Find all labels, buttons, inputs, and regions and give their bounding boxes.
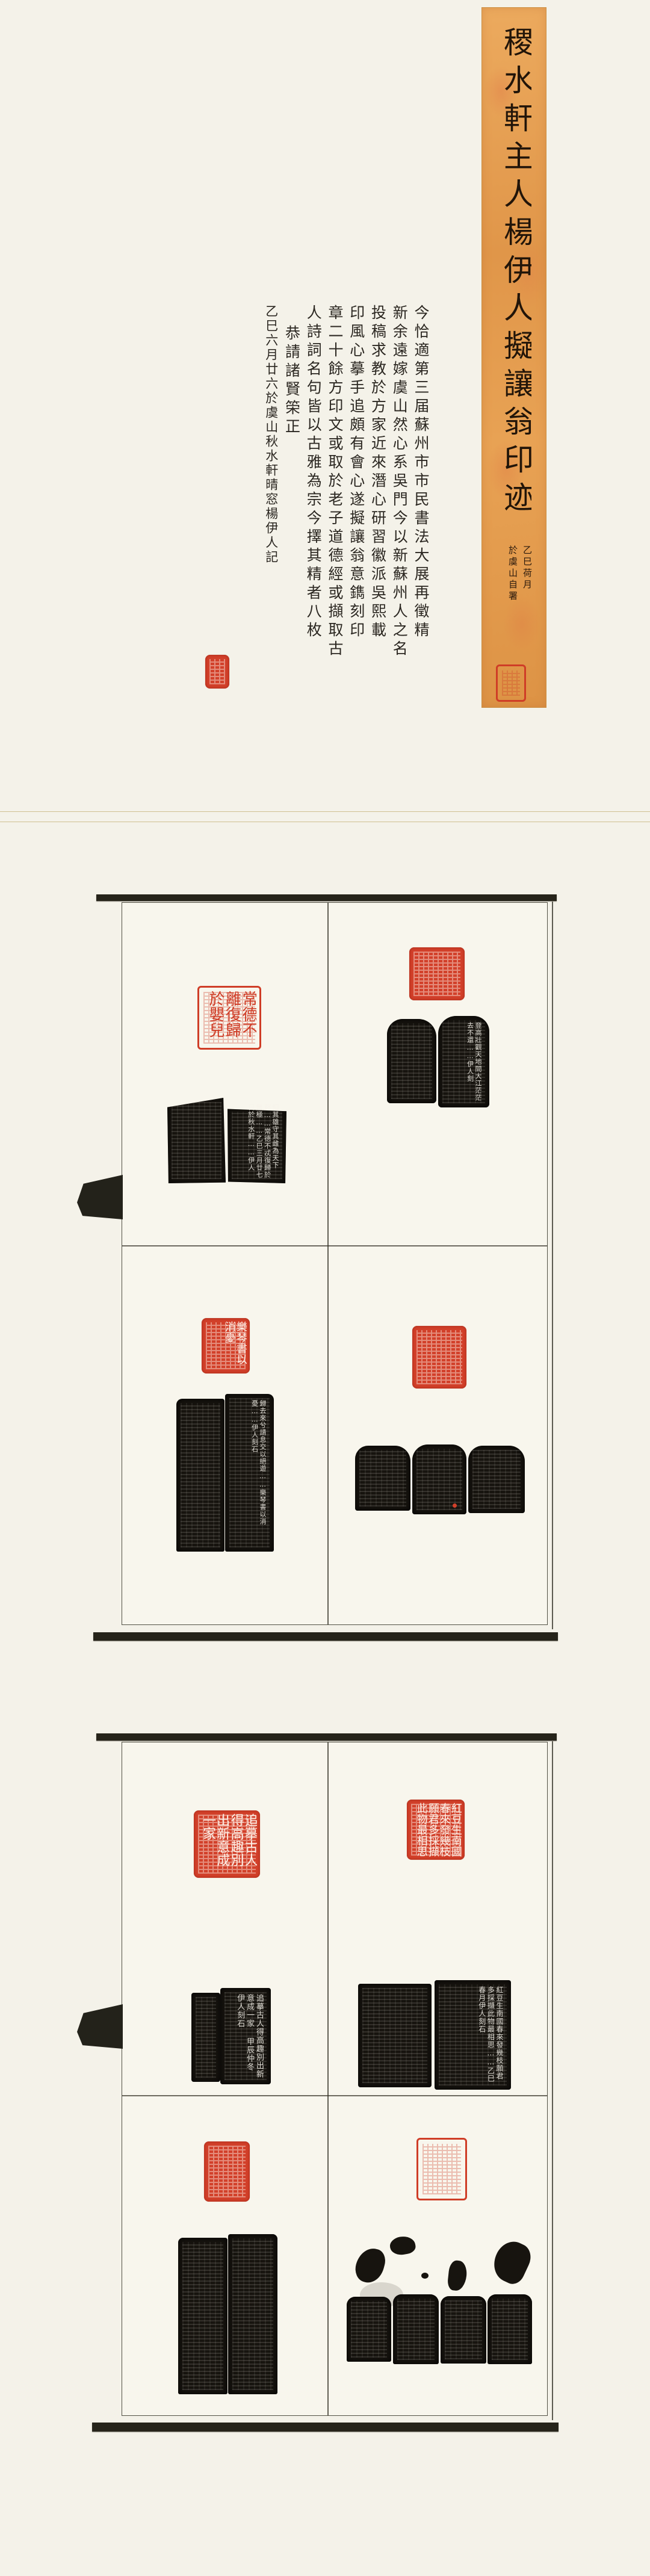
rubbing-double-column (178, 2234, 277, 2394)
album-page-1 (96, 894, 559, 1641)
seal-inscription (501, 669, 521, 697)
seal-inscription (415, 1329, 463, 1386)
rubbing-transcript: 追摹古人得高趣別出新意成一家 甲辰仲冬伊人刻石 (199, 1994, 264, 2078)
frame-top-bar (96, 894, 557, 901)
colophon: 今恰適第三届蘇州市市民書法大展再徵精 新余遠嫁虞山然心系吳門今以新蘇州人之名 投… (209, 305, 433, 699)
seal-inscription: 樂琴書以消憂 (205, 1321, 247, 1370)
rubbing-transcript: 知其雄守其雌為天下谿……常德不忒復歸於無極……乙巳三月廿七日於秋水軒……伊人 (175, 1104, 279, 1178)
frame-bottom-bar (92, 2423, 559, 2432)
seal-inscription (412, 950, 462, 997)
seal-impression (412, 1326, 466, 1389)
title-signature: 乙巳荷月 於虞山自署 (505, 545, 536, 681)
rubbing-transcript: 登高壯觀天地間大江茫茫去不還……伊人刻 (394, 1022, 482, 1101)
colophon-column: 今恰適第三届蘇州市市民書法大展再徵精 (412, 305, 429, 699)
artist-seal (496, 664, 526, 702)
rubbing-tablets (347, 2294, 532, 2365)
title-strip: 稷水軒主人楊伊人擬讓翁印迹 乙巳荷月 於虞山自署 (481, 7, 546, 708)
seal-inscription (208, 658, 226, 686)
colophon-column: 人詩詞名句皆以古雅為宗今擇其精者八枚 (305, 305, 322, 699)
colophon-seal (205, 655, 229, 689)
title-calligraphy: 稷水軒主人楊伊人擬讓翁印迹 (498, 26, 531, 548)
row-divider (122, 2095, 547, 2096)
brocade-band (0, 811, 650, 822)
colophon-signature-column: 乙巳六月廿六於虞山秋水軒晴窓楊伊人記 (264, 305, 279, 699)
rubbing-tablets (355, 1444, 526, 1516)
rubbing-double-block: 追摹古人得高趣別出新意成一家 甲辰仲冬伊人刻石 (191, 1988, 271, 2084)
rubbing-transcript: 紅豆生南國春來發幾枝願君多採擷此物最相思……乙巳春月伊人刻石 (365, 1986, 504, 2084)
scroll-canvas: 稷水軒主人楊伊人擬讓翁印迹 乙巳荷月 於虞山自署 今恰適第三届蘇州市市民書法大展… (0, 0, 650, 2576)
row-divider (122, 1245, 547, 1246)
rubbing-tablets: 登高壯觀天地間大江茫茫去不還……伊人刻 (387, 1016, 489, 1107)
fold-divider (327, 903, 329, 1624)
index-tab (77, 2004, 123, 2049)
rubbing-open-book: 知其雄守其雌為天下谿……常德不忒復歸於無極……乙巳三月廿七日於秋水軒……伊人 (167, 1098, 286, 1184)
seal-impression: 追摹古人得高趣別出新意成一家 (194, 1810, 260, 1878)
frame-bottom-bar (93, 1632, 558, 1641)
seal-impression: 常德不離復歸於嬰兒 (197, 986, 261, 1050)
fold-divider (327, 1742, 329, 2415)
seal-inscription: 追摹古人得高趣別出新意成一家 (197, 1813, 257, 1875)
seal-inscription (421, 2143, 462, 2196)
colophon-column: 新余遠嫁虞山然心系吳門今以新蘇州人之名 (391, 305, 408, 699)
seal-impression: 紅豆生南國春來發幾枝願君多採擷此物最相思 (407, 1800, 465, 1860)
colophon-column: 印風心摹手追頗有會心遂擬讓翁意鐫刻印 (347, 305, 365, 699)
colophon-column: 恭請諸賢筞正 (283, 325, 300, 699)
colophon-column: 章二十餘方印文或取於老子道德經或擷取古 (326, 305, 343, 699)
seal-inscription (207, 2144, 247, 2199)
colophon-column: 投稿求教於方家近來潛心研習徽派吳熙載 (369, 305, 386, 699)
seal-inscription: 常德不離復歸於嬰兒 (202, 991, 256, 1045)
rubbing-transcript: 歸去來兮請息交以絕遊……樂琴書以消憂……伊人刻石 (184, 1400, 267, 1546)
frame-top-bar (96, 1733, 557, 1741)
rubbing-open-book: 紅豆生南國春來發幾枝願君多採擷此物最相思……乙巳春月伊人刻石 (358, 1980, 511, 2090)
seal-inscription: 紅豆生南國春來發幾枝願君多採擷此物最相思 (410, 1803, 462, 1857)
seal-impression (416, 2138, 467, 2200)
index-tab (77, 1175, 123, 1219)
rubbing-transcript (354, 2300, 525, 2359)
seal-impression (409, 947, 465, 1000)
red-seal-speck (453, 1503, 457, 1508)
rubbing-double-column: 歸去來兮請息交以絕遊……樂琴書以消憂……伊人刻石 (176, 1394, 274, 1552)
seal-impression (204, 2141, 250, 2202)
seal-impression: 樂琴書以消憂 (202, 1318, 250, 1373)
signature-place: 於虞山自署 (507, 545, 519, 681)
signature-date: 乙巳荷月 (521, 545, 534, 681)
rubbing-transcript (185, 2240, 270, 2388)
ink-splotch (421, 2273, 429, 2279)
rubbing-transcript (362, 1451, 519, 1509)
